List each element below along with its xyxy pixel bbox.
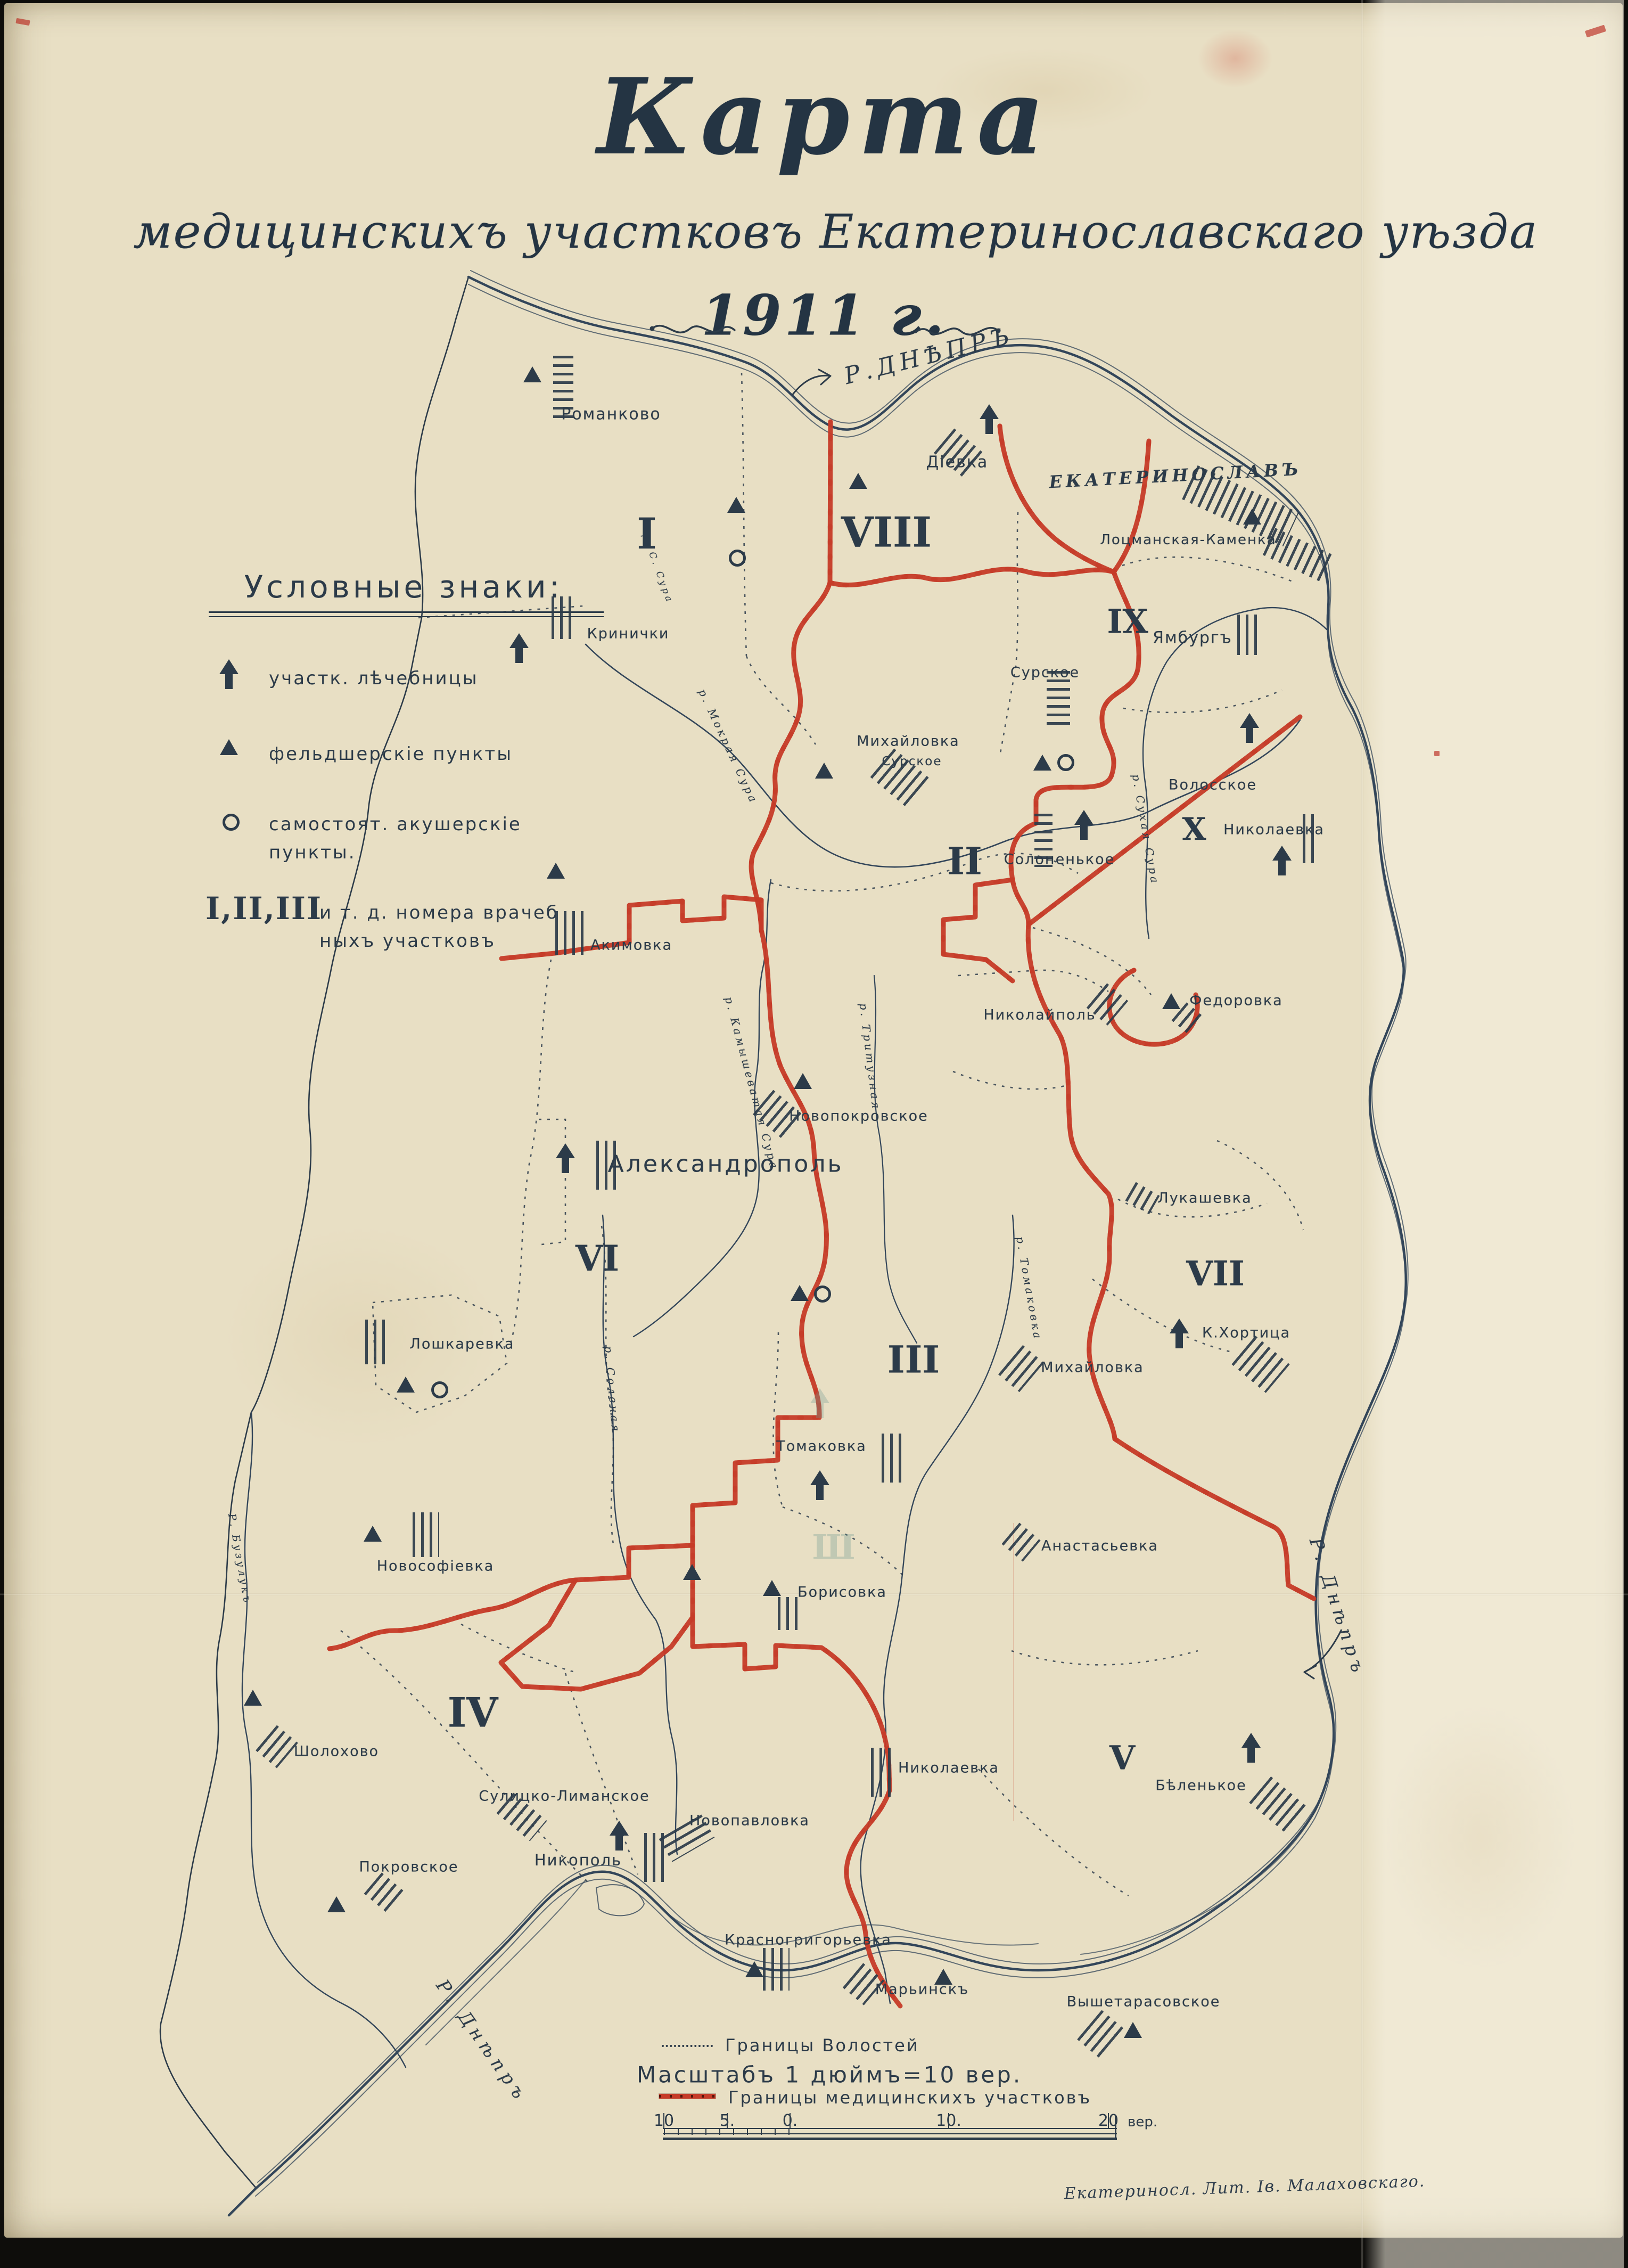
map-title: Карта — [597, 56, 1054, 178]
volost-border-label: Границы Волостей — [725, 2035, 919, 2056]
scale-tick — [790, 2113, 791, 2129]
map-year: 1911 г. — [701, 283, 947, 348]
scale-unit: вер. — [1128, 2114, 1157, 2130]
district-numeral-V: V — [1109, 1739, 1135, 1778]
legend-item-districts: и т. д. номера врачеб ныхъ участковъ — [319, 899, 559, 955]
title-flourish-right — [913, 317, 1004, 346]
district-numeral-II: II — [947, 839, 982, 883]
legend-roman-numerals: I,II,III — [205, 890, 322, 927]
clinic-arrow-icon — [219, 659, 239, 690]
scale-tick — [727, 2113, 728, 2129]
medical-border-sample — [659, 2094, 716, 2099]
scale-tick — [1108, 2113, 1109, 2129]
legend-item-feldsher: фельдшерскіе пункты — [269, 740, 513, 768]
district-numeral-I: I — [637, 509, 656, 559]
district-numeral-VI: VI — [575, 1238, 619, 1279]
map-subtitle: медицинскихъ участковъ Екатеринославскаг… — [133, 204, 1538, 259]
district-numeral-VIII: VIII — [841, 509, 932, 557]
district-numeral-IX: IX — [1107, 602, 1148, 641]
midwife-circle-icon — [223, 814, 240, 831]
district-numeral-IV: IV — [448, 1689, 498, 1737]
district-numeral-X: X — [1182, 811, 1206, 847]
feldsher-triangle-icon — [220, 739, 238, 755]
district-numeral-VII: VII — [1186, 1254, 1245, 1294]
district-numeral-III: III — [887, 1338, 940, 1382]
map-sheet: РоманковоР.ДНѢПРЪДіевкаЕКАТЕРИНОСЛАВЪЛоц… — [0, 0, 1628, 2268]
scale-caption: Масштабъ 1 дюймъ=10 вер. — [637, 2062, 1022, 2088]
legend-heading: Условные знаки: — [244, 569, 563, 605]
legend-underline — [209, 611, 604, 617]
legend-item-clinics: участк. лѣчебницы — [269, 665, 479, 693]
medical-border-label: Границы медицинскихъ участковъ — [728, 2087, 1091, 2108]
legend-item-midwife: самостоят. акушерскіе пункты. — [269, 810, 522, 866]
scale-tick — [663, 2113, 664, 2129]
title-flourish-left — [647, 315, 737, 343]
scale-tick — [948, 2113, 949, 2129]
volost-border-sample — [662, 2045, 713, 2047]
